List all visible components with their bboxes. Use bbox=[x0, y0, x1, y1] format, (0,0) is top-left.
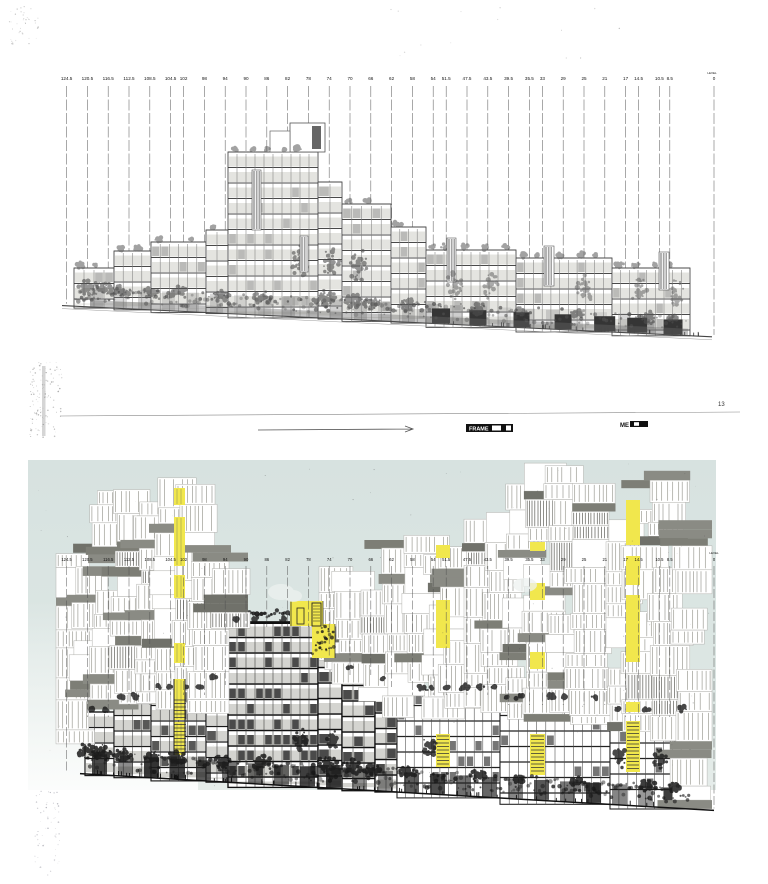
svg-text:39.5: 39.5 bbox=[505, 557, 514, 562]
svg-text:82: 82 bbox=[285, 557, 290, 562]
svg-text:43.5: 43.5 bbox=[483, 76, 492, 81]
svg-text:98: 98 bbox=[202, 557, 207, 562]
svg-text:116.5: 116.5 bbox=[103, 557, 114, 562]
svg-text:102: 102 bbox=[180, 76, 188, 81]
svg-text:33: 33 bbox=[540, 557, 545, 562]
svg-text:39.5: 39.5 bbox=[504, 76, 513, 81]
svg-text:17: 17 bbox=[623, 76, 629, 81]
svg-text:8.5: 8.5 bbox=[667, 557, 673, 562]
svg-text:62: 62 bbox=[389, 76, 395, 81]
svg-text:124.5: 124.5 bbox=[61, 557, 72, 562]
svg-text:51.5: 51.5 bbox=[442, 76, 451, 81]
svg-text:66: 66 bbox=[368, 557, 373, 562]
svg-text:86: 86 bbox=[264, 76, 270, 81]
svg-text:74: 74 bbox=[327, 76, 333, 81]
svg-text:ME: ME bbox=[620, 423, 629, 429]
svg-text:29: 29 bbox=[561, 557, 566, 562]
svg-text:82: 82 bbox=[285, 76, 291, 81]
svg-text:112.5: 112.5 bbox=[124, 557, 135, 562]
svg-text:70: 70 bbox=[347, 76, 353, 81]
svg-text:58: 58 bbox=[410, 76, 416, 81]
svg-text:25: 25 bbox=[582, 557, 587, 562]
svg-text:112.5: 112.5 bbox=[123, 76, 135, 81]
svg-text:120.5: 120.5 bbox=[82, 557, 93, 562]
svg-text:90: 90 bbox=[244, 557, 249, 562]
svg-text:78: 78 bbox=[306, 557, 311, 562]
svg-text:47.5: 47.5 bbox=[463, 76, 472, 81]
svg-text:54: 54 bbox=[431, 76, 437, 81]
svg-text:21: 21 bbox=[602, 557, 607, 562]
svg-text:104.5: 104.5 bbox=[165, 557, 176, 562]
svg-text:43.5: 43.5 bbox=[484, 557, 493, 562]
svg-text:54: 54 bbox=[431, 557, 436, 562]
svg-text:35.5: 35.5 bbox=[525, 76, 534, 81]
svg-text:62: 62 bbox=[389, 557, 394, 562]
svg-text:70: 70 bbox=[348, 557, 353, 562]
svg-text:29: 29 bbox=[561, 76, 567, 81]
svg-text:86: 86 bbox=[264, 557, 269, 562]
svg-text:FRAME: FRAME bbox=[469, 427, 489, 433]
svg-text:33: 33 bbox=[540, 76, 546, 81]
svg-text:10.5: 10.5 bbox=[655, 76, 664, 81]
svg-text:21: 21 bbox=[602, 76, 608, 81]
svg-text:102: 102 bbox=[180, 557, 188, 562]
svg-text:10.5: 10.5 bbox=[655, 557, 664, 562]
svg-text:66: 66 bbox=[368, 76, 374, 81]
svg-text:116.5: 116.5 bbox=[103, 76, 115, 81]
svg-text:94: 94 bbox=[223, 557, 228, 562]
svg-text:0: 0 bbox=[713, 76, 716, 81]
svg-text:90: 90 bbox=[243, 76, 249, 81]
svg-text:13: 13 bbox=[718, 402, 725, 408]
svg-text:108.5: 108.5 bbox=[144, 76, 156, 81]
svg-text:35.5: 35.5 bbox=[525, 557, 534, 562]
svg-text:78: 78 bbox=[306, 76, 312, 81]
svg-text:LEVEL: LEVEL bbox=[709, 551, 719, 555]
svg-text:124.5: 124.5 bbox=[61, 76, 73, 81]
svg-text:104.5: 104.5 bbox=[165, 76, 177, 81]
svg-text:14.5: 14.5 bbox=[635, 557, 644, 562]
svg-text:74: 74 bbox=[327, 557, 332, 562]
svg-text:8.5: 8.5 bbox=[667, 76, 674, 81]
svg-text:LEVEL: LEVEL bbox=[707, 71, 717, 75]
svg-text:98: 98 bbox=[202, 76, 208, 81]
svg-text:17: 17 bbox=[623, 557, 628, 562]
svg-text:51.5: 51.5 bbox=[442, 557, 451, 562]
svg-text:108.5: 108.5 bbox=[145, 557, 156, 562]
svg-text:94: 94 bbox=[223, 76, 229, 81]
svg-text:47.5: 47.5 bbox=[463, 557, 472, 562]
svg-text:25: 25 bbox=[581, 76, 587, 81]
svg-text:120.5: 120.5 bbox=[82, 76, 94, 81]
svg-text:14.5: 14.5 bbox=[634, 76, 643, 81]
svg-text:58: 58 bbox=[410, 557, 415, 562]
